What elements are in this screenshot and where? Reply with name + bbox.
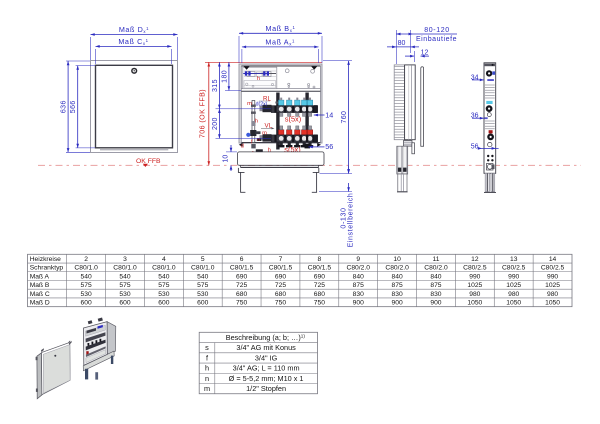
svg-text:m: m <box>204 384 210 393</box>
svg-text:840: 840 <box>353 273 364 280</box>
svg-text:Maß Dx1: Maß Dx1 <box>119 25 149 34</box>
svg-text:1050: 1050 <box>545 299 560 306</box>
svg-text:750: 750 <box>314 299 325 306</box>
svg-text:760: 760 <box>341 111 348 124</box>
svg-text:C80/1.0: C80/1.0 <box>113 265 137 272</box>
svg-text:m: m <box>247 101 252 107</box>
svg-text:56: 56 <box>325 142 333 151</box>
svg-text:10: 10 <box>222 155 229 163</box>
svg-text:830: 830 <box>353 291 364 298</box>
svg-text:h: h <box>257 76 260 82</box>
svg-text:C80/1.0: C80/1.0 <box>191 265 215 272</box>
svg-text:990: 990 <box>547 273 558 280</box>
svg-text:12: 12 <box>421 49 429 56</box>
svg-text:1025: 1025 <box>467 282 482 289</box>
svg-text:990: 990 <box>508 273 519 280</box>
svg-text:Einbautiefe: Einbautiefe <box>416 36 457 43</box>
svg-text:1/2" Stopfen: 1/2" Stopfen <box>246 384 286 393</box>
svg-text:680: 680 <box>275 291 286 298</box>
svg-text:8: 8 <box>317 256 321 263</box>
svg-text:980: 980 <box>547 291 558 298</box>
svg-text:C80/2.5: C80/2.5 <box>502 265 526 272</box>
svg-text:830: 830 <box>392 291 403 298</box>
svg-text:s(5x): s(5x) <box>285 114 301 123</box>
svg-text:Beschreibung (a; b; …)1): Beschreibung (a; b; …)1) <box>226 333 306 342</box>
svg-text:d(2x): d(2x) <box>256 102 268 108</box>
svg-text:750: 750 <box>275 299 286 306</box>
svg-text:Maß Ax1: Maß Ax1 <box>265 37 295 46</box>
svg-text:Einstellbereich: Einstellbereich <box>347 193 354 248</box>
svg-text:C80/2.5: C80/2.5 <box>541 265 565 272</box>
svg-text:Maß D: Maß D <box>30 299 50 306</box>
svg-text:725: 725 <box>236 282 247 289</box>
svg-text:0-130: 0-130 <box>339 207 348 228</box>
svg-text:C80/1.5: C80/1.5 <box>230 265 254 272</box>
svg-text:315: 315 <box>212 79 219 92</box>
svg-text:Maß B: Maß B <box>30 282 50 289</box>
svg-text:530: 530 <box>81 291 92 298</box>
svg-text:575: 575 <box>197 282 208 289</box>
svg-text:10: 10 <box>393 256 401 263</box>
svg-text:725: 725 <box>314 282 325 289</box>
svg-text:980: 980 <box>469 291 480 298</box>
svg-text:13: 13 <box>510 256 518 263</box>
svg-text:900: 900 <box>353 299 364 306</box>
svg-text:14: 14 <box>325 110 333 119</box>
svg-text:14: 14 <box>549 256 557 263</box>
svg-text:Maß Cx1: Maß Cx1 <box>118 37 148 46</box>
svg-text:C80/1.0: C80/1.0 <box>152 265 176 272</box>
svg-text:875: 875 <box>353 282 364 289</box>
svg-text:200: 200 <box>212 117 219 130</box>
svg-text:7: 7 <box>279 256 283 263</box>
svg-text:1025: 1025 <box>506 282 521 289</box>
svg-text:3/4" AG; L = 110 mm: 3/4" AG; L = 110 mm <box>233 364 300 373</box>
svg-text:990: 990 <box>469 273 480 280</box>
svg-text:1025: 1025 <box>545 282 560 289</box>
svg-text:9: 9 <box>356 256 360 263</box>
svg-text:690: 690 <box>314 273 325 280</box>
svg-text:1050: 1050 <box>506 299 521 306</box>
svg-text:h: h <box>205 364 209 373</box>
svg-text:900: 900 <box>392 299 403 306</box>
svg-text:6: 6 <box>240 256 244 263</box>
svg-text:600: 600 <box>197 299 208 306</box>
svg-text:540: 540 <box>197 273 208 280</box>
svg-text:575: 575 <box>119 282 130 289</box>
svg-text:840: 840 <box>430 273 441 280</box>
svg-text:C80/2.5: C80/2.5 <box>463 265 487 272</box>
svg-text:C80/1.5: C80/1.5 <box>308 265 332 272</box>
svg-text:636: 636 <box>61 100 68 113</box>
svg-text:3/4" IG: 3/4" IG <box>255 353 278 362</box>
svg-text:d: d <box>241 143 244 149</box>
svg-text:530: 530 <box>119 291 130 298</box>
svg-text:34: 34 <box>471 74 479 81</box>
svg-text:m: m <box>262 130 267 136</box>
svg-text:600: 600 <box>81 299 92 306</box>
svg-text:575: 575 <box>158 282 169 289</box>
svg-text:875: 875 <box>392 282 403 289</box>
svg-text:Schranktyp: Schranktyp <box>30 265 64 272</box>
svg-text:Maß C: Maß C <box>30 291 50 298</box>
svg-text:2: 2 <box>84 256 88 263</box>
svg-text:56: 56 <box>471 144 479 151</box>
svg-text:4: 4 <box>162 256 166 263</box>
svg-text:12: 12 <box>471 256 479 263</box>
svg-text:690: 690 <box>236 273 247 280</box>
svg-text:980: 980 <box>508 291 519 298</box>
svg-text:875: 875 <box>430 282 441 289</box>
svg-text:n: n <box>205 374 209 383</box>
svg-text:C80/1.0: C80/1.0 <box>74 265 98 272</box>
svg-text:180: 180 <box>221 70 228 83</box>
svg-text:C80/2.0: C80/2.0 <box>424 265 448 272</box>
svg-text:530: 530 <box>197 291 208 298</box>
svg-text:C80/1.5: C80/1.5 <box>269 265 293 272</box>
svg-text:680: 680 <box>236 291 247 298</box>
svg-text:600: 600 <box>119 299 130 306</box>
svg-text:706 (OK FFB): 706 (OK FFB) <box>199 89 207 138</box>
svg-text:690: 690 <box>275 273 286 280</box>
svg-text:Heizkreise: Heizkreise <box>30 256 61 263</box>
svg-text:840: 840 <box>392 273 403 280</box>
svg-text:3/4" AG mit Konus: 3/4" AG mit Konus <box>236 343 296 352</box>
svg-text:3: 3 <box>123 256 127 263</box>
svg-text:Ø = 5-5,2 mm; M10 x 1: Ø = 5-5,2 mm; M10 x 1 <box>229 374 304 383</box>
svg-text:680: 680 <box>314 291 325 298</box>
svg-text:830: 830 <box>430 291 441 298</box>
svg-text:OK FFB: OK FFB <box>136 158 161 165</box>
svg-text:566: 566 <box>70 100 77 113</box>
svg-text:h: h <box>255 118 258 124</box>
svg-text:80-120: 80-120 <box>424 27 449 34</box>
svg-text:900: 900 <box>430 299 441 306</box>
svg-text:530: 530 <box>158 291 169 298</box>
svg-text:11: 11 <box>432 256 439 263</box>
svg-text:s: s <box>205 343 209 352</box>
svg-text:80: 80 <box>398 40 406 47</box>
svg-text:C80/2.0: C80/2.0 <box>347 265 371 272</box>
svg-text:Maß A: Maß A <box>30 273 50 280</box>
svg-text:1050: 1050 <box>467 299 482 306</box>
svg-text:Maß Bx1: Maß Bx1 <box>266 24 296 33</box>
svg-text:n: n <box>257 137 260 143</box>
svg-text:5: 5 <box>201 256 205 263</box>
svg-text:540: 540 <box>158 273 169 280</box>
svg-text:540: 540 <box>119 273 130 280</box>
svg-text:575: 575 <box>81 282 92 289</box>
svg-text:C80/2.0: C80/2.0 <box>385 265 409 272</box>
svg-text:750: 750 <box>236 299 247 306</box>
svg-text:600: 600 <box>158 299 169 306</box>
svg-text:540: 540 <box>81 273 92 280</box>
svg-text:725: 725 <box>275 282 286 289</box>
